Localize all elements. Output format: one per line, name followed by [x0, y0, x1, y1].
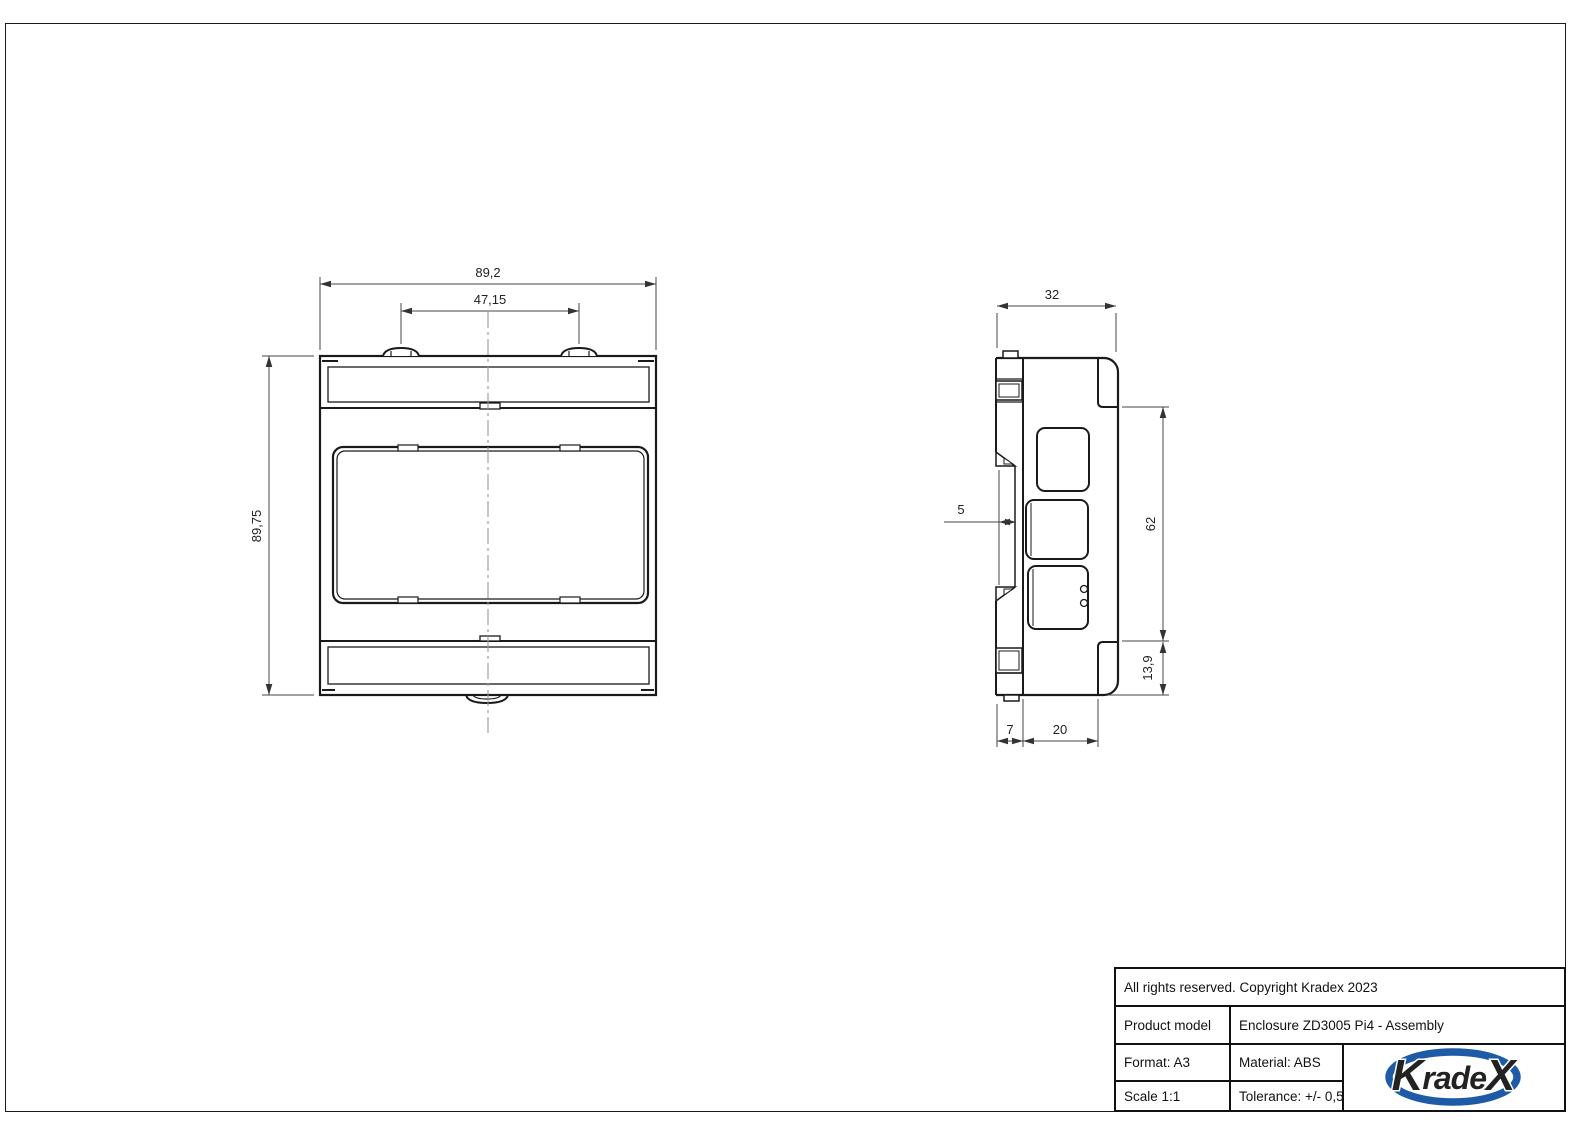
dim-front-width: 89,2 [475, 265, 500, 280]
format-field: Format: A3 [1116, 1045, 1235, 1080]
material-field: Material: ABS [1231, 1045, 1348, 1080]
drawing-sheet: { "sheet": { "background": "#ffffff", "l… [0, 0, 1588, 1123]
kradex-logo: KradeX [1342, 1043, 1564, 1110]
logo-text: KradeX [1392, 1051, 1518, 1100]
front-view-drawing [320, 312, 656, 733]
side-view-drawing [996, 351, 1118, 701]
front-cover-tabs [398, 445, 580, 603]
scale-field: Scale 1:1 [1116, 1082, 1235, 1110]
technical-drawing: 89,2 47,15 89,75 [0, 0, 1588, 1123]
dim-front-mount-spacing: 47,15 [474, 292, 507, 307]
tolerance-field: Tolerance: +/- 0,5 [1231, 1082, 1348, 1110]
dim-side-depth: 32 [1045, 287, 1059, 302]
din-rail-profile [996, 351, 1023, 701]
dim-front-height: 89,75 [249, 510, 264, 543]
front-bottom-latch [480, 636, 500, 641]
connector-cutout-3 [1028, 566, 1088, 629]
dim-side-body-height: 62 [1143, 517, 1158, 531]
front-top-bosses [383, 348, 597, 356]
front-cover-window [333, 447, 648, 603]
title-block: All rights reserved. Copyright Kradex 20… [1114, 967, 1566, 1112]
led-hole-1 [1081, 586, 1088, 593]
product-model-value: Enclosure ZD3005 Pi4 - Assembly [1231, 1007, 1569, 1043]
copyright-text: All rights reserved. Copyright Kradex 20… [1116, 969, 1572, 1005]
dim-side-cover-depth: 20 [1053, 722, 1067, 737]
connector-cutout-2 [1026, 500, 1088, 559]
side-view-dimensions [944, 306, 1169, 747]
product-model-label: Product model [1116, 1007, 1235, 1043]
dim-side-lower-height: 13,9 [1140, 655, 1155, 680]
dim-side-rail-offset: 5 [957, 502, 964, 517]
led-hole-2 [1081, 600, 1088, 607]
connector-cutout-1 [1037, 428, 1089, 491]
dim-side-clip-depth: 7 [1006, 722, 1013, 737]
din-clip-bump [466, 695, 508, 703]
kradex-logo-graphic: KradeX [1375, 1047, 1531, 1107]
front-top-latch [480, 403, 500, 409]
